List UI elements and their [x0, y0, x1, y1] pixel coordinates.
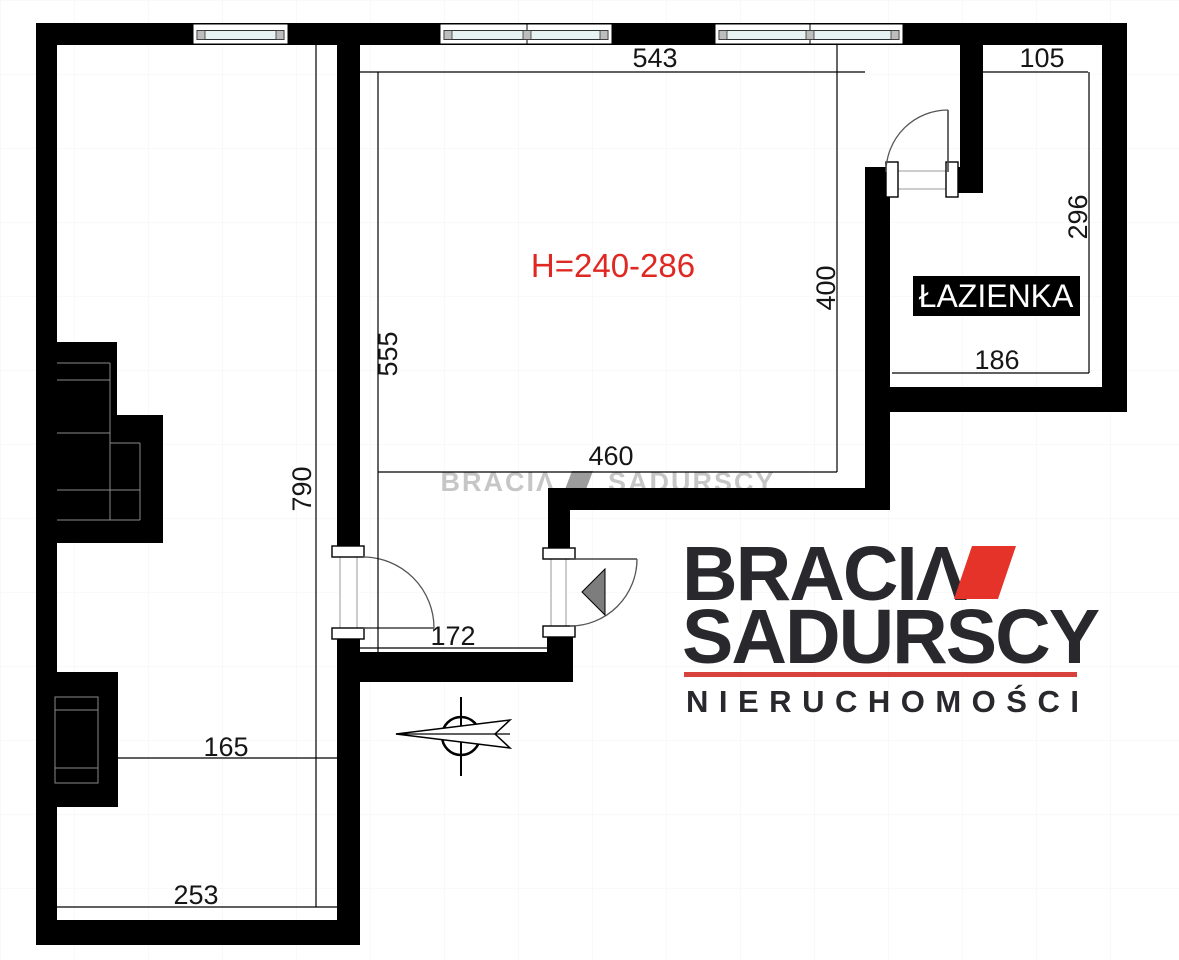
window-corridor	[193, 24, 288, 44]
floor-plan-drawing: BRACIΛ SADURSCY	[0, 0, 1179, 960]
dim-label-lower-width: 165	[203, 732, 248, 762]
dim-label-bath-bottom: 186	[974, 345, 1019, 375]
window-mullion-icon	[444, 31, 452, 40]
ceiling-height-note: H=240-286	[531, 247, 695, 284]
dim-label-entry-width: 172	[430, 621, 475, 651]
wall-corridor-upper	[337, 23, 360, 552]
window-mullion-icon	[276, 31, 284, 40]
window-mainroom-right	[715, 24, 903, 44]
door-jamb	[886, 162, 898, 197]
dim-label-main-top: 543	[632, 43, 677, 73]
floor-plan-page: BRACIΛ SADURSCY	[0, 0, 1179, 960]
dim-label-main-right: 400	[811, 265, 841, 310]
door-opening	[338, 552, 359, 637]
door-jamb	[543, 548, 575, 559]
logo-tagline: NIERUCHOMOŚCI	[686, 683, 1089, 719]
dim-label-main-left: 555	[373, 331, 403, 376]
door-opening	[895, 168, 950, 192]
shaft-body	[40, 672, 118, 807]
wall-corridor-lower	[337, 637, 360, 920]
bathroom-label: ŁAZIENKA	[913, 276, 1080, 316]
dim-label-corridor: 790	[287, 466, 317, 511]
wall-entry-stub-upper	[548, 510, 570, 552]
wall-mainroom-right	[865, 167, 890, 510]
logo-word2: SADURSCY	[682, 594, 1100, 680]
dim-label-main-bottom: 460	[588, 441, 633, 471]
wall-mainroom-bottom	[548, 488, 890, 510]
window-mullion-icon	[523, 31, 531, 40]
window-glass	[197, 31, 284, 40]
shaft-block-lower	[40, 672, 118, 807]
window-mullion-icon	[719, 31, 727, 40]
door-jamb	[332, 628, 364, 639]
logo-underline	[684, 672, 1077, 677]
door-jamb	[543, 626, 575, 637]
wall-entry-bottom	[358, 652, 573, 682]
wall-bath-left-upper	[960, 23, 983, 193]
dim-label-lower-bottom: 253	[173, 880, 218, 910]
dim-label-bath-right: 296	[1063, 194, 1093, 239]
wall-outer-right	[1102, 23, 1127, 412]
dim-label-bath-top: 105	[1019, 43, 1064, 73]
window-mullion-icon	[600, 31, 608, 40]
window-mainroom-left	[440, 24, 612, 44]
window-mullion-icon	[806, 31, 814, 40]
wall-bath-bottom	[865, 387, 1127, 412]
window-mullion-icon	[197, 31, 205, 40]
door-jamb	[332, 546, 364, 557]
bathroom-label-text: ŁAZIENKA	[919, 278, 1074, 314]
wall-outer-bottom	[36, 920, 360, 945]
window-mullion-icon	[891, 31, 899, 40]
